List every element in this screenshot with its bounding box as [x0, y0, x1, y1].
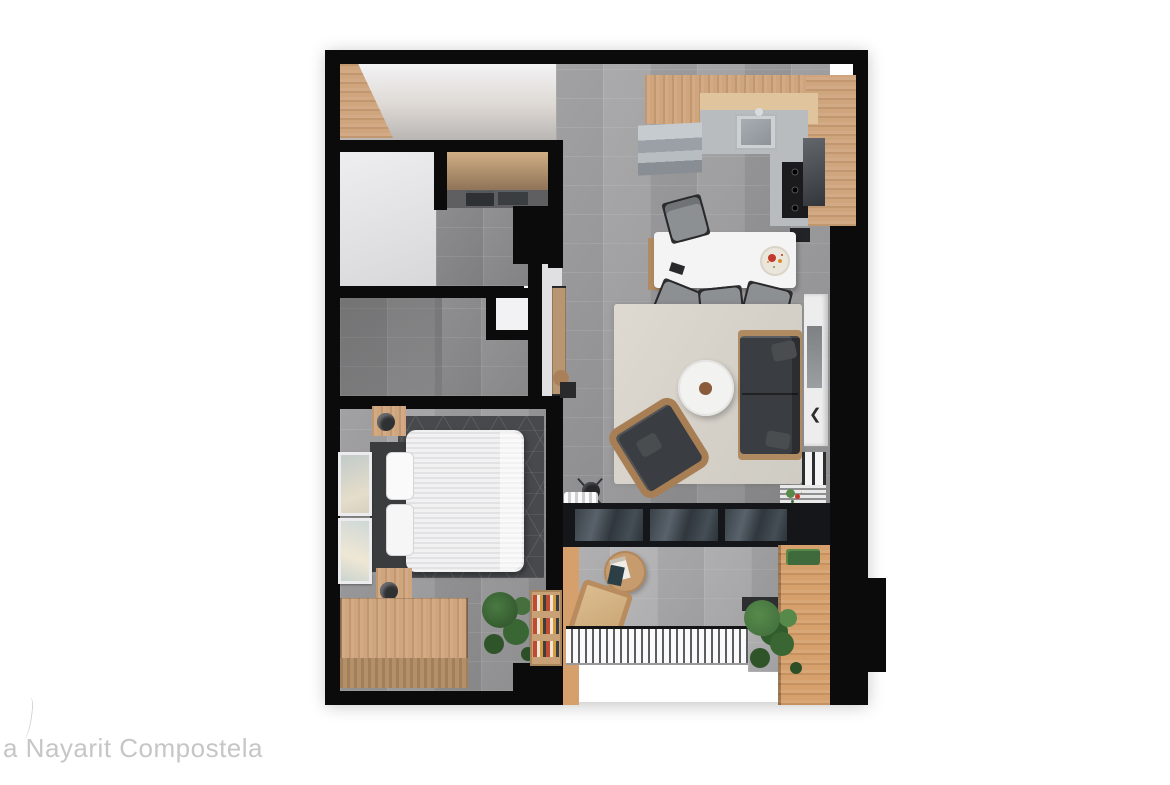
- bed-pillow: [386, 452, 414, 500]
- table-lamp: [377, 413, 395, 431]
- balcony-wood-wall: [778, 545, 830, 705]
- wall-corridor-south: [332, 140, 563, 152]
- cabinet-handle-icon: ❮: [809, 402, 825, 428]
- fruit: [768, 254, 776, 262]
- bedroom-plant: [482, 592, 518, 628]
- books: [533, 618, 559, 634]
- wall-closet-hall: [548, 140, 563, 268]
- wall-bedroom-corner: [513, 663, 563, 705]
- tv-screen: [807, 326, 822, 388]
- storage-bench-front: [340, 658, 468, 688]
- duvet-fold: [500, 432, 522, 570]
- washer: [466, 191, 494, 206]
- storage-bench: [340, 598, 468, 660]
- wall-bedroom-north: [332, 396, 561, 409]
- bathroom-1-floor: [340, 152, 438, 286]
- glass-pane: [575, 509, 643, 541]
- laundry-closet-ceiling: [447, 152, 548, 192]
- balcony-plant: [744, 600, 780, 636]
- wall-east-column: [830, 223, 868, 705]
- glass-pane: [725, 509, 787, 541]
- dryer: [498, 190, 528, 205]
- table-centerpiece: [699, 382, 712, 395]
- watermark-text: a Nayarit Compostela: [3, 733, 263, 764]
- sofa-cushion-seam: [742, 393, 798, 395]
- balcony-planter: [786, 549, 820, 565]
- floorplan-render: ❮ a Nayarit Compostela: [0, 0, 1170, 785]
- glass-pane: [650, 509, 718, 541]
- fridge: [803, 138, 825, 206]
- wall-art: [338, 518, 372, 584]
- wall-bath2-east: [528, 262, 542, 406]
- bed-pillow: [386, 504, 414, 556]
- books: [533, 595, 559, 611]
- bathroom-2-shower: [340, 298, 442, 396]
- deck-railing: [566, 626, 748, 665]
- sink-basin: [741, 119, 771, 145]
- wall-east-pilaster: [866, 578, 886, 672]
- faucet-icon: [755, 108, 763, 116]
- duct-shaft-inner: [496, 298, 532, 330]
- books: [533, 641, 559, 657]
- wall-bath1-closet: [434, 143, 447, 210]
- wall-art: [338, 452, 372, 516]
- wall-north: [325, 50, 868, 64]
- dishwasher: [638, 122, 702, 175]
- flower-pots: [786, 489, 795, 498]
- fruit-bowl: [760, 246, 790, 276]
- door-mat: [560, 382, 576, 398]
